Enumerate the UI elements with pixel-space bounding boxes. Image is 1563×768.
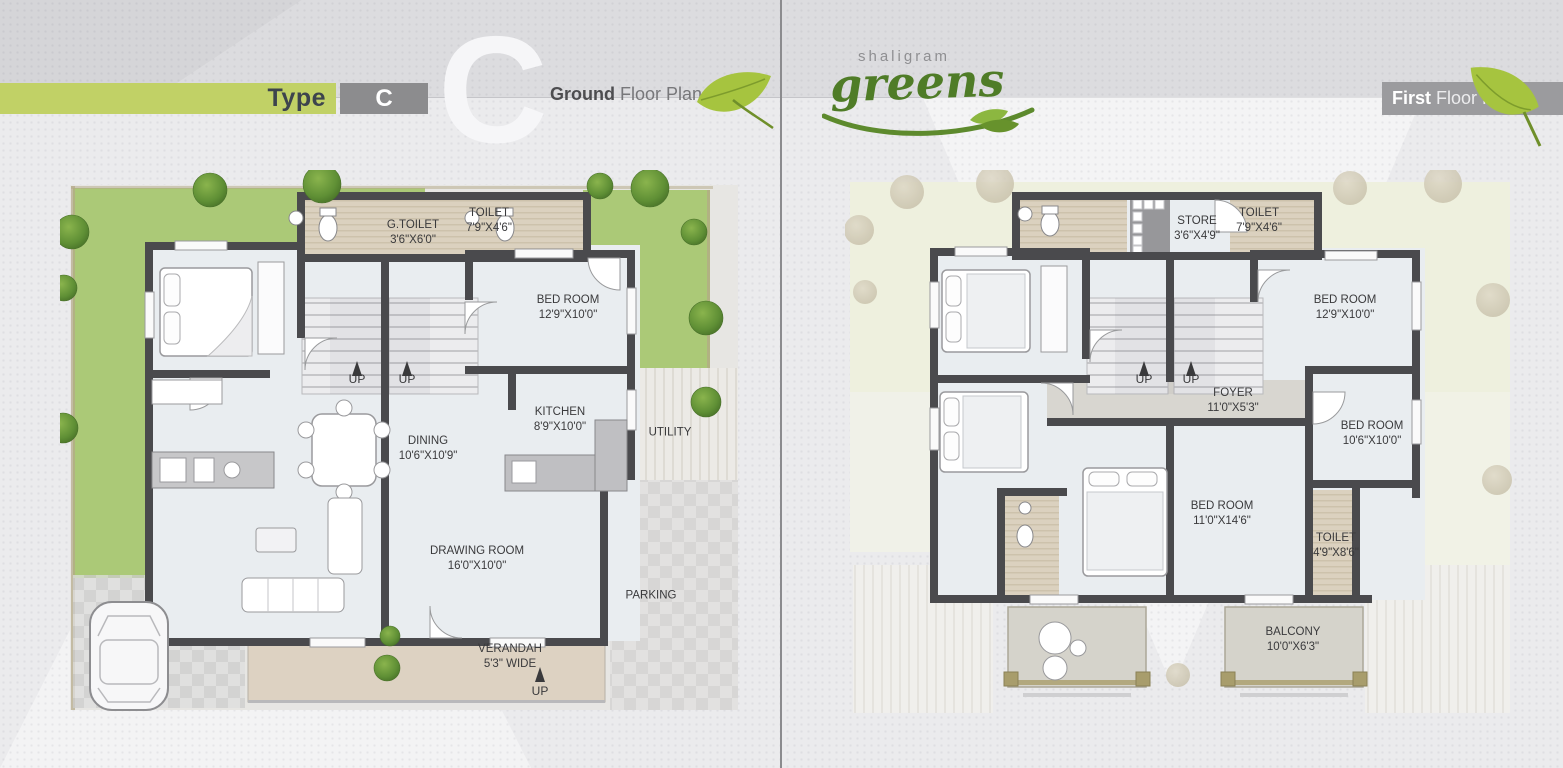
bed [160, 268, 252, 356]
type-code: C [375, 85, 392, 113]
balcony-right [1221, 607, 1367, 697]
ground-floor-plan-drawing [60, 170, 750, 720]
type-band: Type [0, 83, 336, 114]
type-label: Type [268, 84, 327, 113]
wardrobe [258, 262, 284, 354]
balcony-left [1004, 607, 1150, 697]
car [90, 602, 168, 710]
stairs-ground [302, 298, 478, 394]
type-code-box: C [340, 83, 428, 114]
panel-divider [780, 0, 782, 768]
brand-logo: shaligram greens [830, 48, 1040, 123]
brand-swoosh-icon [822, 106, 1037, 146]
first-floor-plan-drawing [845, 170, 1535, 720]
stairs-first [1087, 298, 1263, 394]
bed [1083, 468, 1167, 576]
wardrobe [1041, 266, 1067, 352]
first-floor-plan-title-band: First Floor Plan [1382, 82, 1563, 115]
first-floor-plan-title: First Floor Plan [1392, 88, 1518, 109]
store-shelves [1130, 197, 1170, 255]
bed [942, 270, 1030, 352]
floor-plan-brochure: G.TOILET3'6"X6'0" TOILET7'9"X4'6" BED RO… [0, 0, 1563, 768]
brand-name-main: greens [829, 59, 1040, 105]
ground-floor-plan-title: Ground Floor Plan [420, 84, 702, 105]
bed [940, 392, 1028, 472]
